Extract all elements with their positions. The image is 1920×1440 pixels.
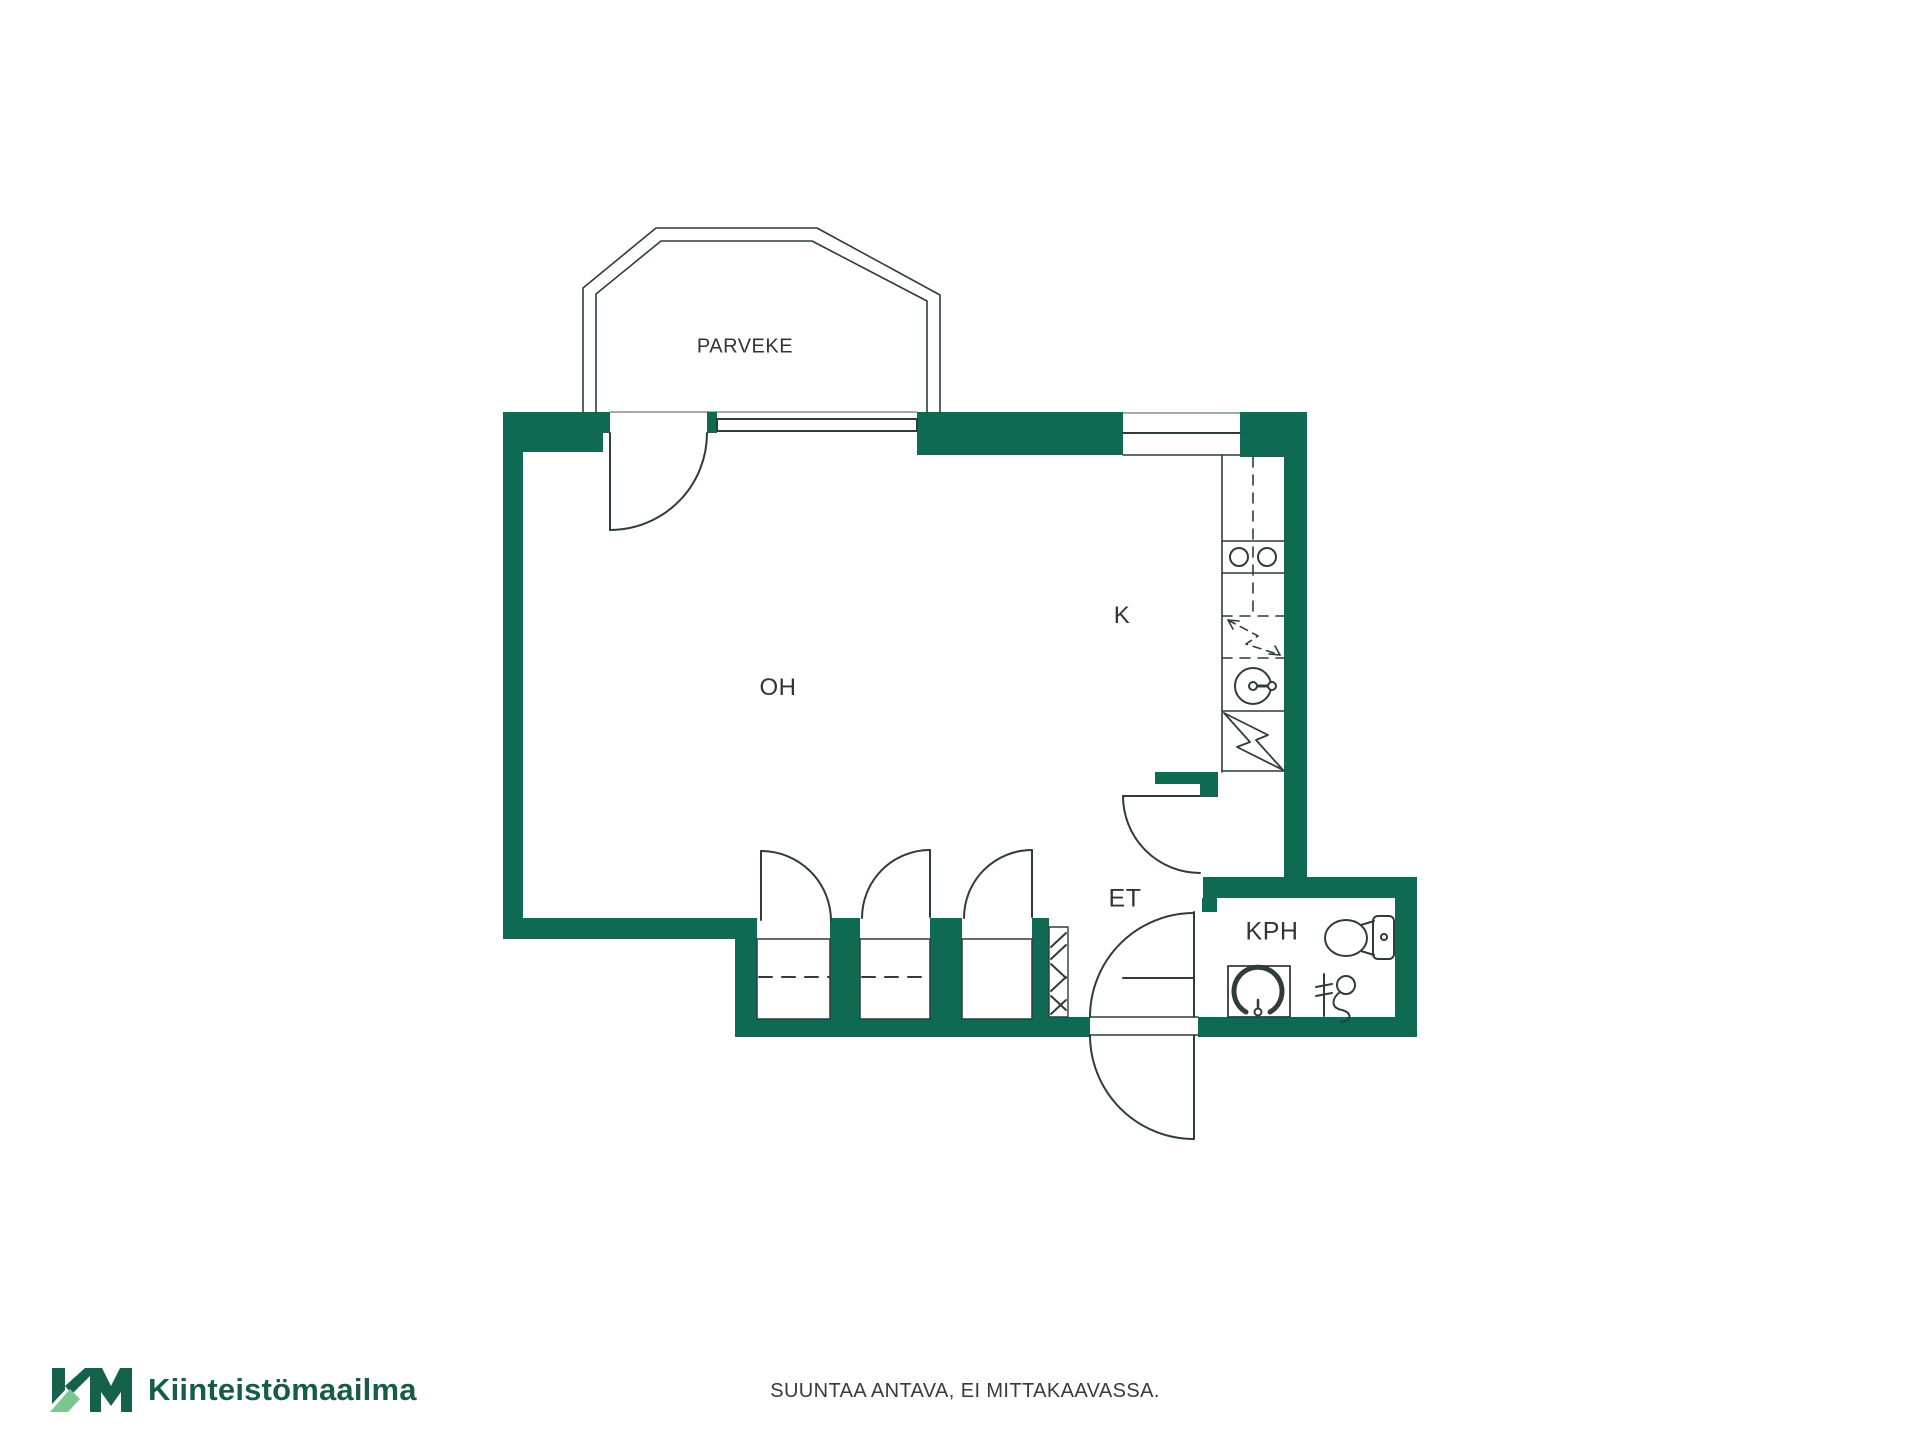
kitchen-counter [1222, 455, 1284, 772]
wall-kitchen-entry [1155, 772, 1218, 784]
km-logo-icon [46, 1362, 142, 1418]
wall-closet-divider-2 [930, 918, 962, 1019]
window-living-room [717, 419, 917, 431]
wall-kph-south [1198, 1017, 1417, 1037]
room-label-balcony: PARVEKE [697, 336, 793, 359]
disclaimer-text: SUUNTAA ANTAVA, EI MITTAKAAVASSA. [660, 1380, 1270, 1403]
floorplan-page: PARVEKE OH K ET KPH Kiinteistömaailma SU… [0, 0, 1920, 1440]
wall-et-south [735, 1017, 1090, 1037]
wall-oh-bottom [503, 918, 757, 939]
linework [583, 228, 1394, 1139]
wall-kitchen-entry-jamb [1200, 784, 1218, 797]
wall-top-jamb [707, 412, 717, 433]
room-label-entry: ET [1109, 885, 1142, 914]
wall-closet-right [1032, 918, 1049, 1019]
closet-door-2 [862, 850, 930, 918]
wall-closet-left [735, 938, 757, 1019]
wall-top-right-corner [1240, 412, 1307, 457]
toilet-icon [1325, 916, 1394, 959]
kitchen-door [1123, 796, 1200, 873]
closet-1 [757, 939, 830, 1019]
window-kitchen [1123, 433, 1240, 455]
wall-right-kitchen [1284, 455, 1307, 898]
wall-top-left-b [503, 433, 603, 452]
balcony-outline-outer [583, 228, 940, 412]
wall-closet-divider-1 [830, 918, 860, 1019]
electrical-panel-icon [1224, 713, 1283, 770]
closet-3 [962, 939, 1032, 1019]
dishwasher-reservation-icon [1228, 620, 1280, 655]
sink-icon [1235, 668, 1276, 704]
wall-kph-east [1395, 898, 1417, 1019]
room-label-bathroom: KPH [1246, 918, 1299, 947]
closet-door-3 [964, 850, 1032, 918]
shower-mixer-icon [1316, 974, 1355, 1022]
balcony-outline-inner [596, 241, 927, 412]
shaft-hatch-icon [1049, 927, 1068, 1017]
entry-door [1090, 912, 1198, 1139]
floorplan-drawing [0, 0, 1920, 1440]
closet-2 [860, 939, 930, 1019]
room-label-kitchen: K [1114, 602, 1131, 630]
balcony-door-arc [610, 433, 707, 530]
wall-kph-west-stub [1202, 898, 1217, 912]
washbasin-icon [1228, 966, 1290, 1017]
wall-top-mid [917, 412, 1123, 455]
balcony-door [610, 433, 707, 530]
closet-door-1 [761, 851, 831, 921]
closets [757, 939, 1032, 1019]
wall-kph-north [1203, 877, 1417, 898]
wall-top-left-a [503, 412, 610, 433]
wall-left [503, 412, 523, 939]
room-label-living-room: OH [760, 674, 797, 702]
brand-name: Kiinteistömaailma [148, 1372, 417, 1408]
